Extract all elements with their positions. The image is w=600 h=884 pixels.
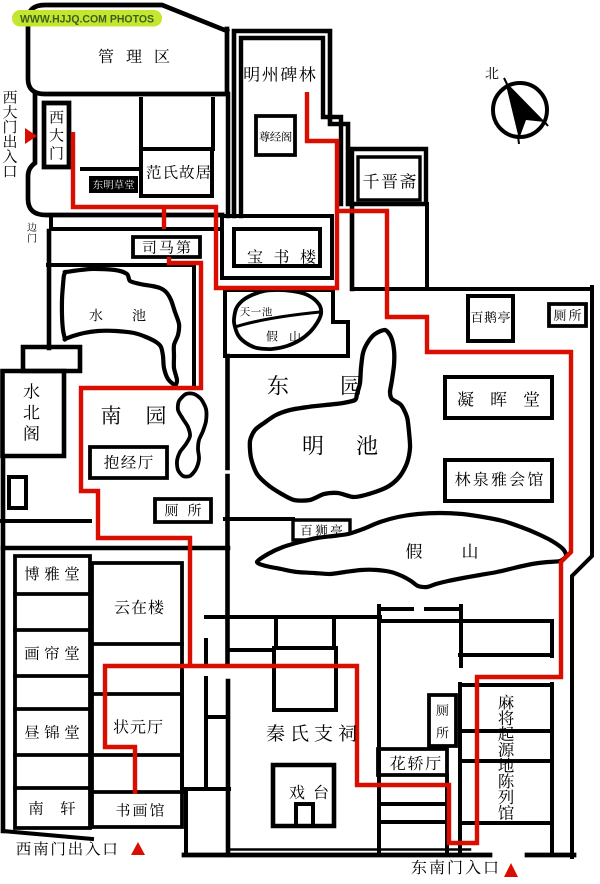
svg-text:WWW.HJJQ.COM PHOTOS: WWW.HJJQ.COM PHOTOS	[20, 13, 154, 25]
